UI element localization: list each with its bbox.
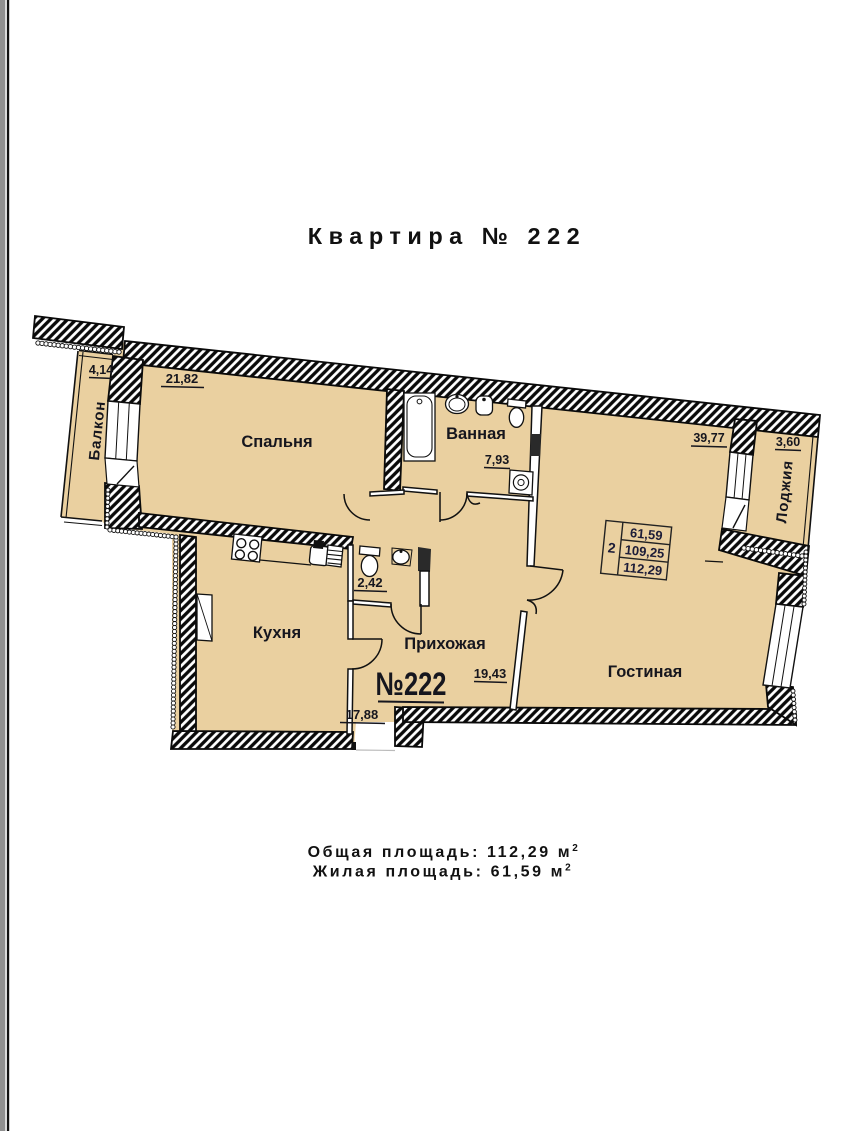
svg-text:2,42: 2,42 [357, 575, 382, 590]
svg-text:Общая площадь: 112,29 м2: Общая площадь: 112,29 м2 [308, 843, 581, 861]
svg-text:Квартира № 222: Квартира № 222 [308, 223, 586, 249]
svg-text:4,14: 4,14 [89, 363, 113, 377]
svg-text:Кухня: Кухня [253, 624, 301, 642]
svg-text:39,77: 39,77 [693, 431, 724, 445]
svg-text:Гостиная: Гостиная [608, 663, 683, 681]
svg-text:7,93: 7,93 [485, 453, 509, 467]
svg-text:19,43: 19,43 [474, 666, 507, 681]
svg-text:17,88: 17,88 [346, 707, 379, 722]
svg-text:3,60: 3,60 [776, 435, 800, 449]
svg-text:21,82: 21,82 [166, 371, 199, 386]
svg-text:Прихожая: Прихожая [404, 635, 485, 653]
svg-text:Ванная: Ванная [446, 425, 506, 443]
svg-text:№222: №222 [376, 666, 447, 703]
svg-text:Жилая площадь: 61,59 м2: Жилая площадь: 61,59 м2 [312, 863, 574, 881]
svg-text:Спальня: Спальня [241, 433, 312, 451]
